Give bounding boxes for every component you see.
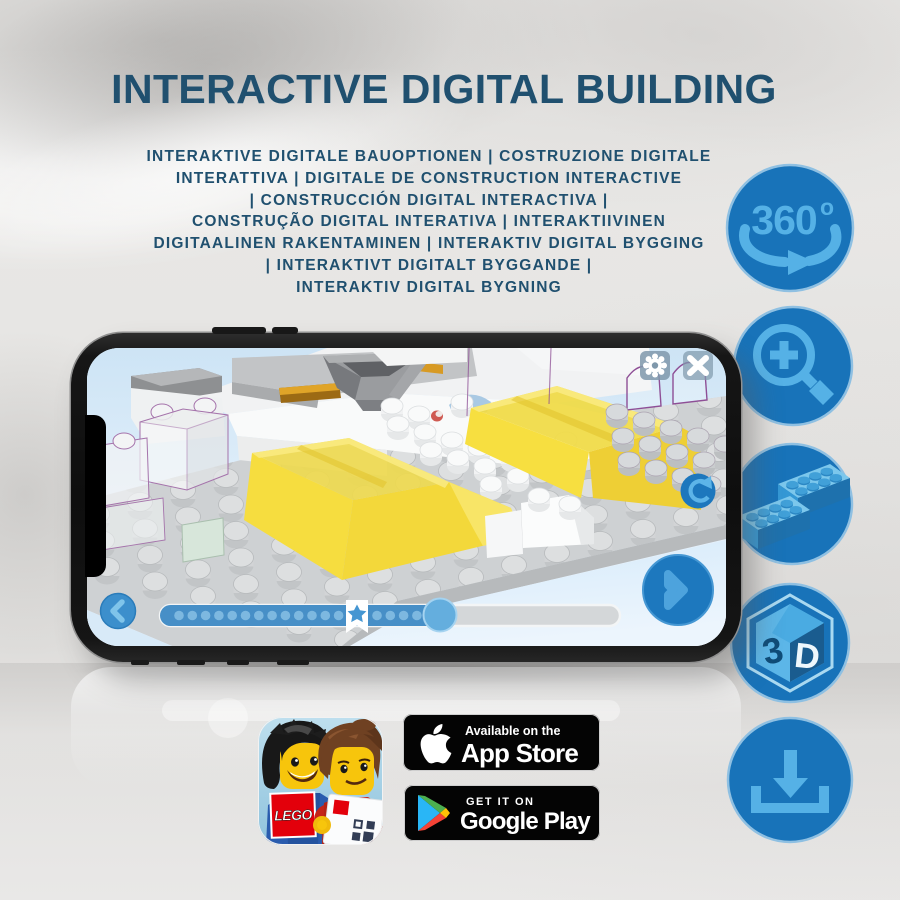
svg-text:o: o <box>820 194 834 220</box>
svg-text:360: 360 <box>751 197 817 243</box>
svg-text:D: D <box>793 636 822 677</box>
svg-text:LEGO: LEGO <box>274 806 313 823</box>
